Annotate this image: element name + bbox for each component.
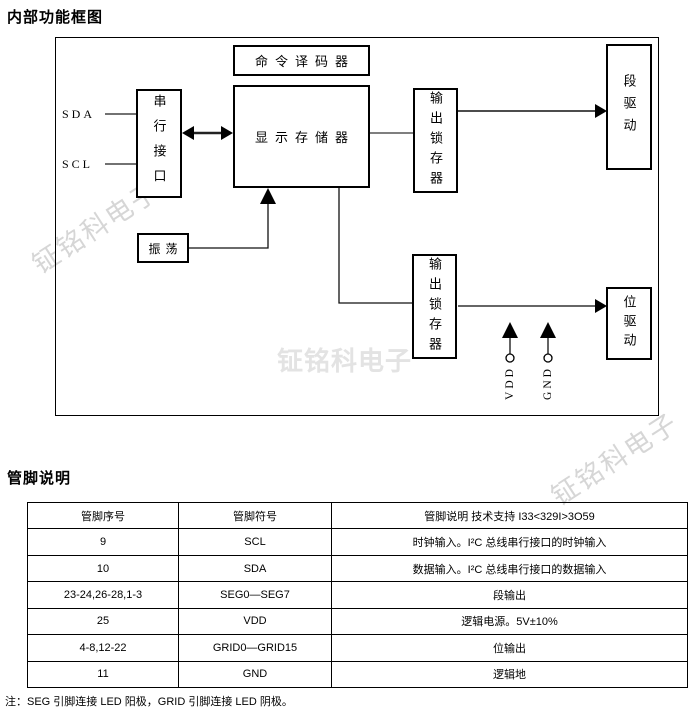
output-latch-top-label: 输出锁存器 xyxy=(426,91,445,191)
latch2-to-bit-arrow xyxy=(458,299,607,313)
page-title: 内部功能框图 xyxy=(7,6,103,27)
display-memory-label: 显示存储器 xyxy=(248,127,355,146)
pin-table-header-row: 管脚序号 管脚符号 管脚说明 技术支持 I33<329I>3O59 xyxy=(28,503,688,529)
command-decoder-label: 命令译码器 xyxy=(248,51,355,70)
pin-symbol: VDD xyxy=(179,608,332,634)
pin-symbol: SDA xyxy=(179,555,332,581)
block-diagram: 命令译码器 串行接口 显示存储器 输出锁存器 段驱动 振荡 输出锁存器 位驱动 … xyxy=(55,37,659,416)
oscillator-arrow xyxy=(189,188,276,248)
pin-desc: 时钟输入。I²C 总线串行接口的时钟输入 xyxy=(332,529,688,555)
datasheet-page: 钲铭科电子 钲铭科电子 钲铭科电子 内部功能框图 xyxy=(0,0,693,716)
pin-number: 9 xyxy=(28,529,179,555)
memory-to-latch2-line xyxy=(339,188,412,303)
pin-symbol: SEG0—SEG7 xyxy=(179,582,332,608)
oscillator-box: 振荡 xyxy=(137,233,189,263)
segment-driver-box: 段驱动 xyxy=(606,44,652,170)
output-latch-bottom-box: 输出锁存器 xyxy=(412,254,457,359)
header-pin-number: 管脚序号 xyxy=(28,503,179,529)
scl-label: SCL xyxy=(62,157,93,172)
pin-symbol: GRID0—GRID15 xyxy=(179,635,332,661)
bit-driver-box: 位驱动 xyxy=(606,287,652,360)
pin-desc: 段输出 xyxy=(332,582,688,608)
pin-number: 11 xyxy=(28,661,179,687)
pin-section-title: 管脚说明 xyxy=(7,467,71,488)
table-row: 4-8,12-22 GRID0—GRID15 位输出 xyxy=(28,635,688,661)
sda-label: SDA xyxy=(62,107,95,122)
pin-symbol: SCL xyxy=(179,529,332,555)
table-row: 25 VDD 逻辑电源。5V±10% xyxy=(28,608,688,634)
output-latch-top-box: 输出锁存器 xyxy=(413,88,458,193)
command-decoder-box: 命令译码器 xyxy=(233,45,370,76)
output-latch-bottom-label: 输出锁存器 xyxy=(425,257,444,357)
pin-number: 10 xyxy=(28,555,179,581)
pin-number: 4-8,12-22 xyxy=(28,635,179,661)
table-row: 9 SCL 时钟输入。I²C 总线串行接口的时钟输入 xyxy=(28,529,688,555)
pin-table: 管脚序号 管脚符号 管脚说明 技术支持 I33<329I>3O59 9 SCL … xyxy=(27,502,688,688)
watermark-right: 钲铭科电子 xyxy=(542,402,685,514)
table-row: 11 GND 逻辑地 xyxy=(28,661,688,687)
pin-number: 25 xyxy=(28,608,179,634)
pin-desc: 数据输入。I²C 总线串行接口的数据输入 xyxy=(332,555,688,581)
pin-desc: 位输出 xyxy=(332,635,688,661)
display-memory-box: 显示存储器 xyxy=(233,85,370,188)
gnd-label: GND xyxy=(541,353,555,413)
table-row: 10 SDA 数据输入。I²C 总线串行接口的数据输入 xyxy=(28,555,688,581)
pin-number: 23-24,26-28,1-3 xyxy=(28,582,179,608)
vdd-label: VDD xyxy=(503,353,517,413)
pin-desc: 逻辑地 xyxy=(332,661,688,687)
bidirectional-arrow xyxy=(182,126,233,140)
footnote: 注：SEG 引脚连接 LED 阳极，GRID 引脚连接 LED 阴极。 xyxy=(5,693,293,709)
segment-driver-label: 段驱动 xyxy=(620,74,639,140)
pin-symbol: GND xyxy=(179,661,332,687)
bit-driver-label: 位驱动 xyxy=(620,295,639,352)
header-pin-symbol: 管脚符号 xyxy=(179,503,332,529)
header-pin-desc: 管脚说明 技术支持 I33<329I>3O59 xyxy=(332,503,688,529)
pin-desc: 逻辑电源。5V±10% xyxy=(332,608,688,634)
latch-to-segment-arrow xyxy=(458,104,607,118)
serial-interface-box: 串行接口 xyxy=(136,89,182,198)
oscillator-label: 振荡 xyxy=(143,240,182,257)
table-row: 23-24,26-28,1-3 SEG0—SEG7 段输出 xyxy=(28,582,688,608)
serial-interface-label: 串行接口 xyxy=(150,94,169,194)
